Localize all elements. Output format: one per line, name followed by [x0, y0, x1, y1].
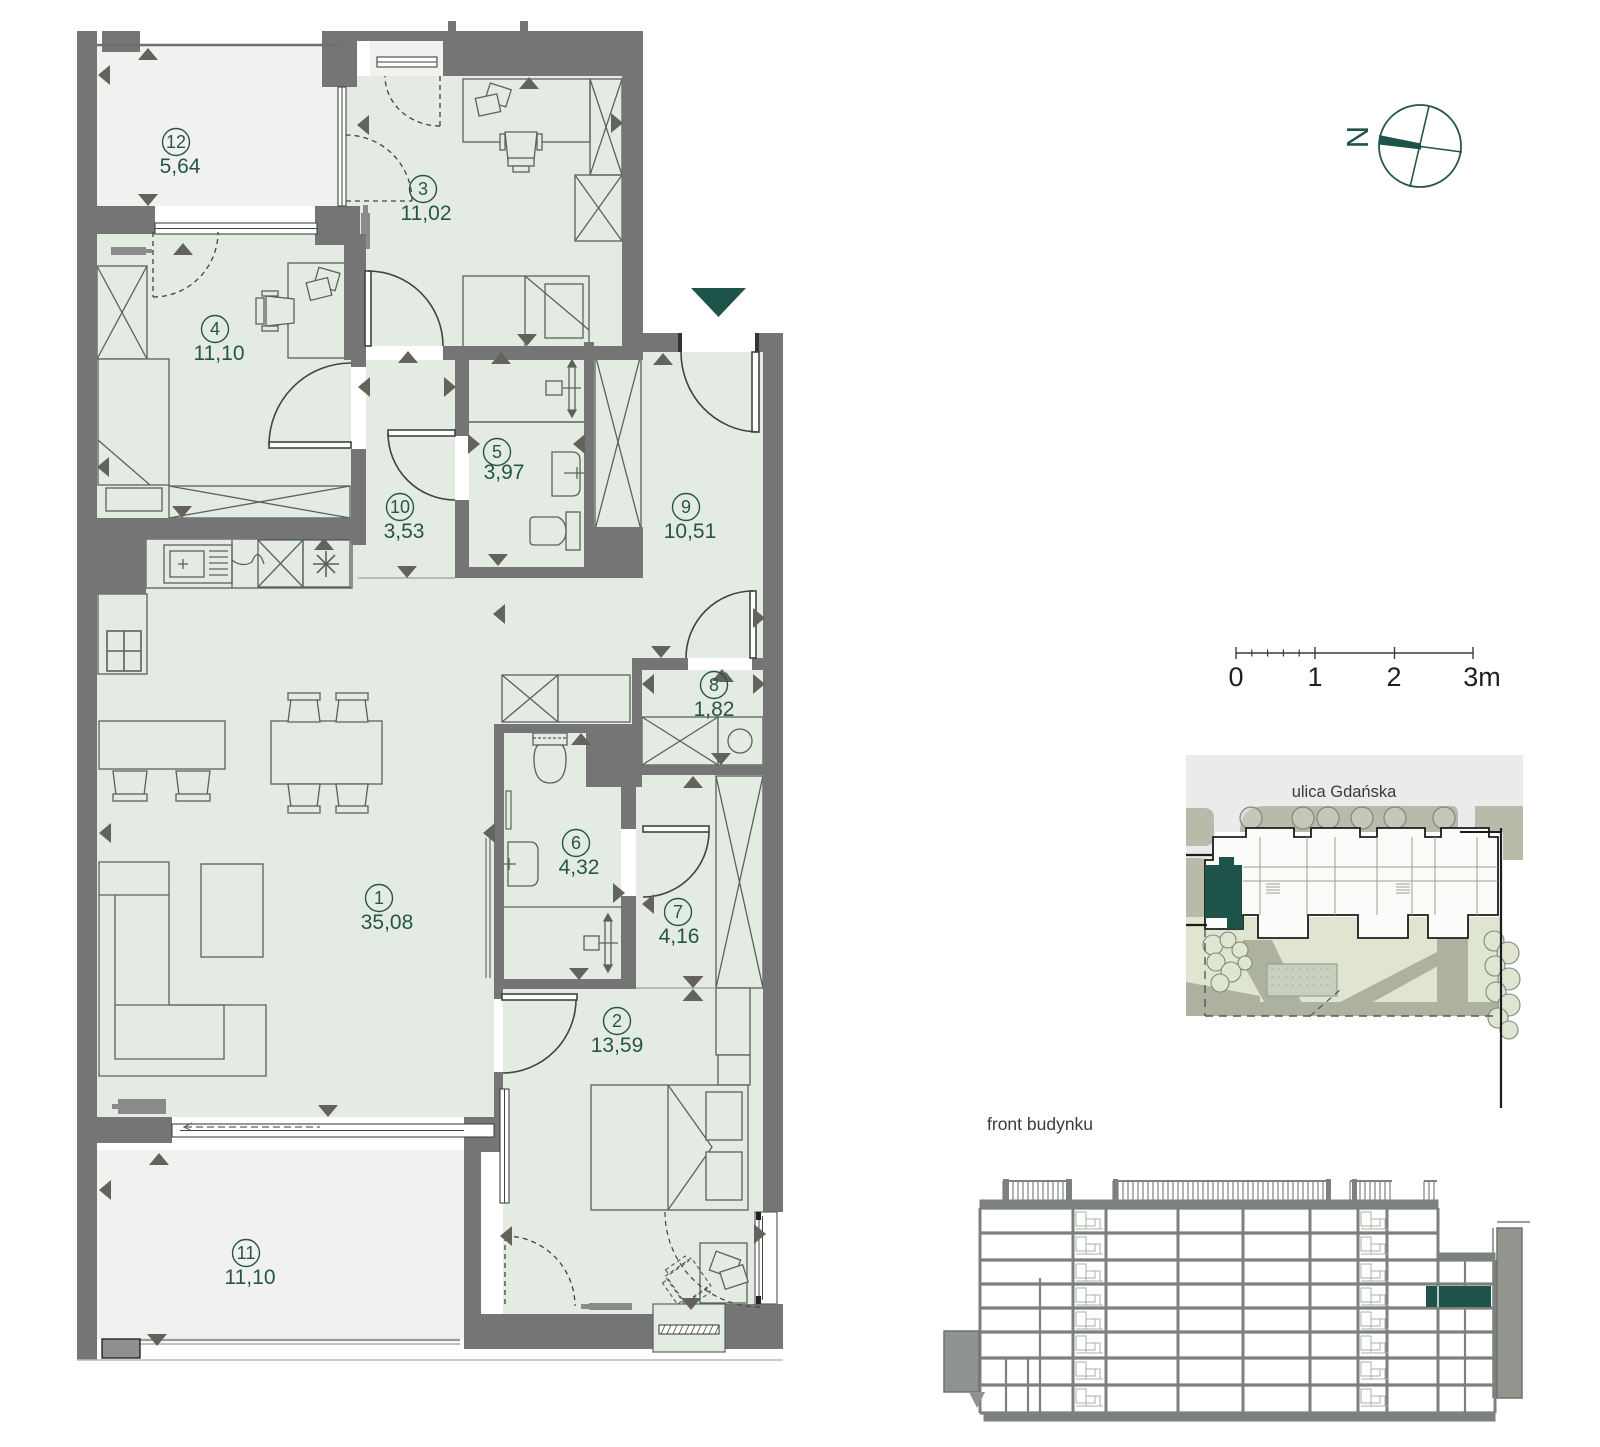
svg-text:35,08: 35,08	[361, 911, 414, 934]
svg-text:11,02: 11,02	[401, 202, 452, 225]
svg-text:4,32: 4,32	[559, 856, 600, 879]
svg-text:4,16: 4,16	[659, 925, 700, 948]
svg-text:3: 3	[418, 179, 428, 199]
svg-text:2: 2	[612, 1011, 622, 1031]
svg-text:12: 12	[166, 132, 186, 152]
svg-text:4: 4	[210, 319, 220, 339]
svg-text:8: 8	[709, 675, 719, 695]
svg-text:10,51: 10,51	[664, 520, 717, 543]
svg-text:0: 0	[1228, 662, 1243, 692]
svg-text:11: 11	[237, 1243, 256, 1263]
svg-text:9: 9	[681, 497, 691, 517]
svg-text:5,64: 5,64	[160, 155, 201, 178]
svg-text:2: 2	[1386, 662, 1401, 692]
svg-text:5: 5	[492, 442, 502, 462]
svg-text:1,82: 1,82	[694, 698, 735, 721]
svg-text:1: 1	[374, 888, 384, 908]
svg-text:6: 6	[571, 833, 581, 853]
svg-text:7: 7	[673, 902, 683, 922]
svg-text:3,53: 3,53	[384, 520, 425, 543]
svg-text:13,59: 13,59	[591, 1034, 644, 1057]
svg-text:3,97: 3,97	[484, 461, 525, 484]
svg-text:10: 10	[390, 497, 410, 517]
svg-text:1: 1	[1307, 662, 1322, 692]
svg-text:11,10: 11,10	[225, 1266, 276, 1289]
svg-text:N: N	[1340, 126, 1375, 148]
svg-text:front budynku: front budynku	[987, 1114, 1093, 1134]
svg-text:11,10: 11,10	[194, 342, 245, 365]
svg-text:3m: 3m	[1463, 662, 1501, 692]
svg-text:ulica Gdańska: ulica Gdańska	[1292, 783, 1397, 801]
